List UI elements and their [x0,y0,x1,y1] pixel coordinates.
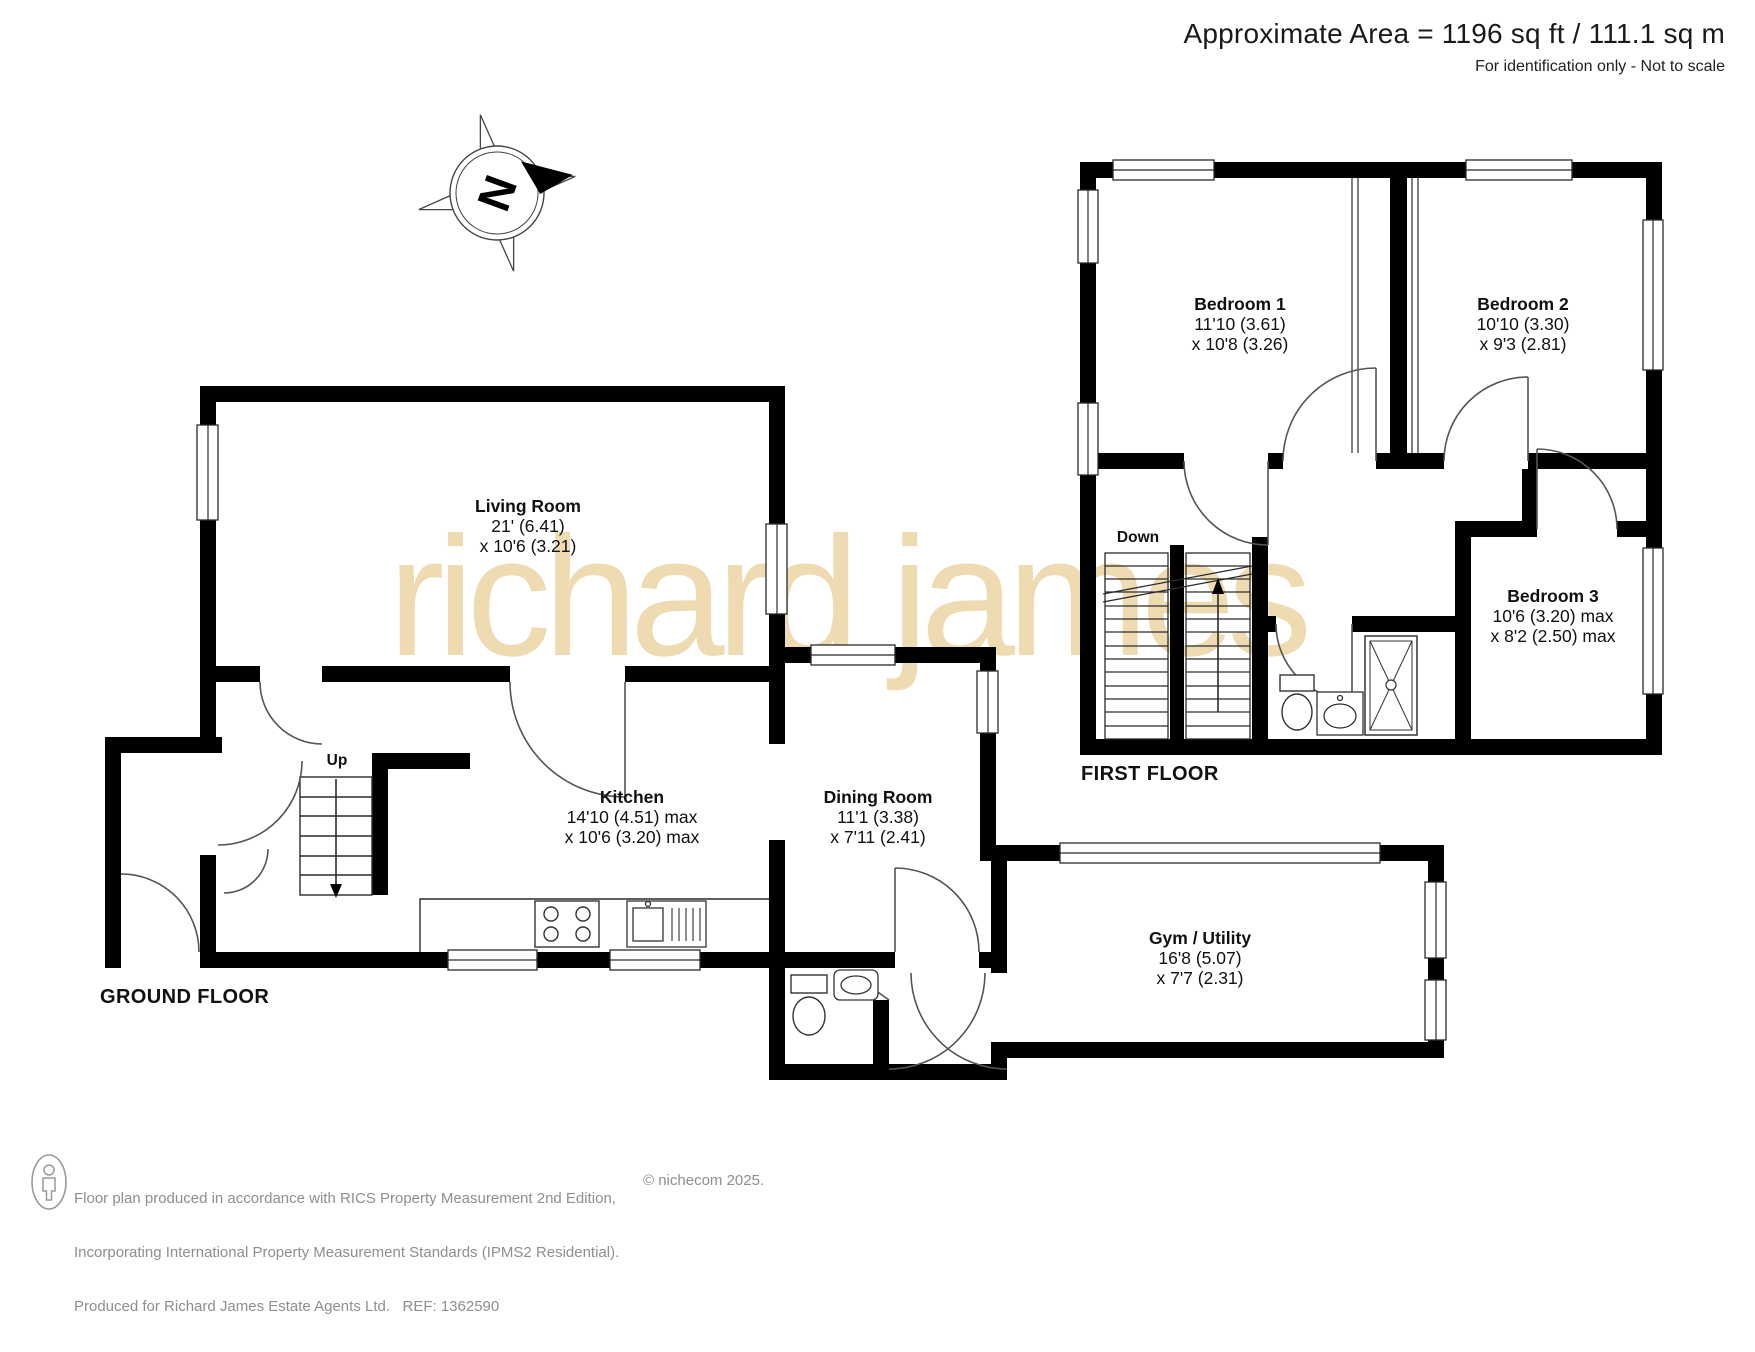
room-name: Dining Room [824,787,933,807]
room-dim: x 7'11 (2.41) [824,827,933,847]
room-label-dining-room: Dining Room 11'1 (3.38) x 7'11 (2.41) [824,787,933,847]
room-label-kitchen: Kitchen 14'10 (4.51) max x 10'6 (3.20) m… [565,787,700,847]
room-name: Kitchen [565,787,700,807]
footer-disclaimer: Floor plan produced in accordance with R… [74,1154,619,1352]
basin-icon [1317,692,1363,735]
room-dim: x 8'2 (2.50) max [1491,626,1616,646]
floorplan-page: { "header": { "area_text": "Approximate … [0,0,1755,1241]
first-floor-title: FIRST FLOOR [1081,763,1219,786]
toilet-icon [1280,675,1314,730]
ground-window-midlines [208,425,1436,1040]
room-label-bedroom-1: Bedroom 1 11'10 (3.61) x 10'8 (3.26) [1192,294,1289,354]
kitchen-sink-icon [627,901,706,947]
room-label-living-room: Living Room 21' (6.41) x 10'6 (3.21) [475,496,581,556]
footer-line-3: Produced for Richard James Estate Agents… [74,1298,619,1316]
room-dim: 10'6 (3.20) max [1491,606,1616,626]
stairs-up-label: Up [327,752,348,770]
room-label-gym-utility: Gym / Utility 16'8 (5.07) x 7'7 (2.31) [1149,928,1251,988]
approximate-area-text: Approximate Area = 1196 sq ft / 111.1 sq… [1184,18,1725,50]
ground-floor-title: GROUND FLOOR [100,986,269,1009]
room-dim: 21' (6.41) [475,516,581,536]
room-label-bedroom-2: Bedroom 2 10'10 (3.30) x 9'3 (2.81) [1477,294,1570,354]
header: Approximate Area = 1196 sq ft / 111.1 sq… [1184,18,1725,76]
staircase-up [300,777,372,898]
bedroom-divider-lines [1352,178,1418,453]
room-label-bedroom-3: Bedroom 3 10'6 (3.20) max x 8'2 (2.50) m… [1491,586,1616,646]
stove-icon [535,901,599,947]
shower-icon [1365,636,1417,735]
footer-line-1: Floor plan produced in accordance with R… [74,1190,619,1208]
person-icon [32,1155,66,1209]
room-dim: 14'10 (4.51) max [565,807,700,827]
footer-line-2: Incorporating International Property Mea… [74,1244,619,1262]
room-dim: 11'10 (3.61) [1192,314,1289,334]
room-dim: x 9'3 (2.81) [1477,334,1570,354]
toilet-icon [791,975,827,1035]
room-name: Bedroom 1 [1192,294,1289,314]
room-dim: x 10'8 (3.26) [1192,334,1289,354]
room-name: Bedroom 2 [1477,294,1570,314]
room-dim: 16'8 (5.07) [1149,948,1251,968]
stairs-down-label: Down [1117,529,1159,547]
compass-rose-icon: N [402,98,592,288]
room-name: Living Room [475,496,581,516]
room-dim: x 10'6 (3.20) max [565,827,700,847]
room-name: Gym / Utility [1149,928,1251,948]
not-to-scale-text: For identification only - Not to scale [1184,58,1725,76]
room-dim: 11'1 (3.38) [824,807,933,827]
copyright-text: © nichecom 2025. [643,1172,764,1190]
room-dim: x 7'7 (2.31) [1149,968,1251,988]
room-dim: 10'10 (3.30) [1477,314,1570,334]
basin-icon [834,970,878,1000]
first-floor-plan [1078,160,1663,755]
room-dim: x 10'6 (3.21) [475,536,581,556]
room-name: Bedroom 3 [1491,586,1616,606]
